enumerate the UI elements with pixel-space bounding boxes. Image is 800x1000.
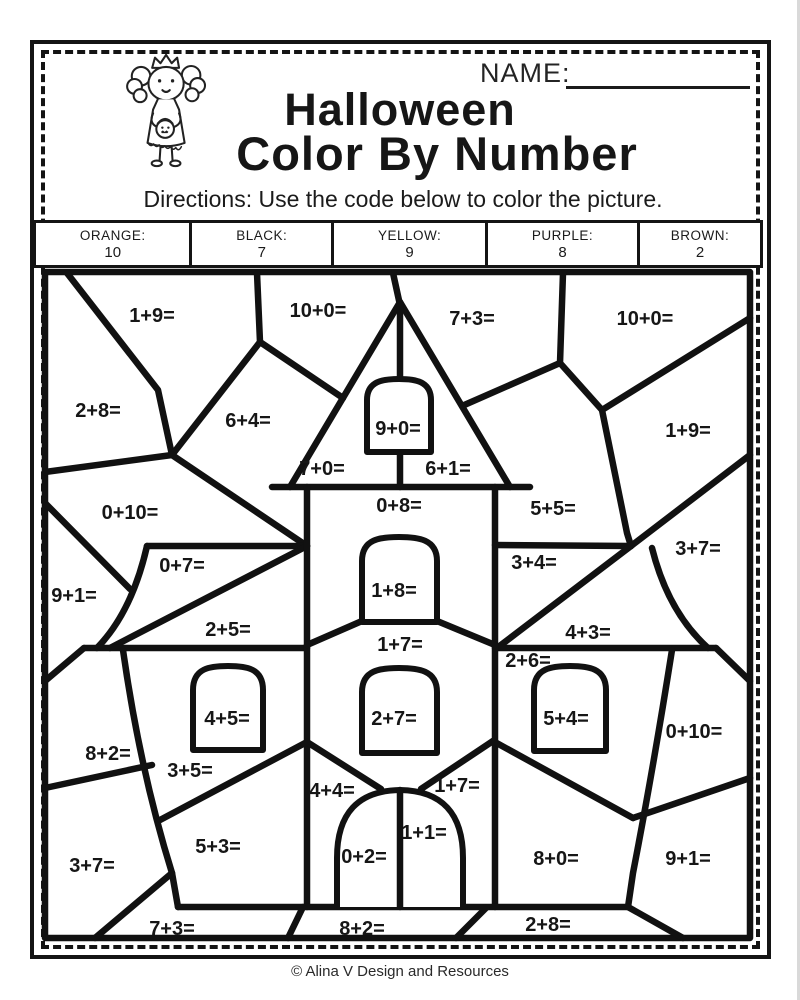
equation-label: 3+7= xyxy=(675,538,721,560)
equation-label: 0+10= xyxy=(666,721,723,743)
equation-label: 10+0= xyxy=(617,308,674,330)
crown-icon xyxy=(152,55,179,68)
color-number: 10 xyxy=(104,244,121,261)
equation-label: 3+5= xyxy=(167,760,213,782)
girl-eye-left xyxy=(158,79,161,82)
equation-label: 5+4= xyxy=(543,708,589,730)
equation-label: 1+9= xyxy=(129,305,175,327)
code-cell-black: BLACK: 7 xyxy=(192,223,334,265)
equation-label: 1+8= xyxy=(371,580,417,602)
equation-label: 3+7= xyxy=(69,855,115,877)
equation-label: 5+3= xyxy=(195,836,241,858)
color-number: 8 xyxy=(558,244,566,261)
code-cell-orange: ORANGE: 10 xyxy=(36,223,192,265)
worksheet-title-line2: Color By Number xyxy=(37,126,800,181)
equation-label: 4+3= xyxy=(565,622,611,644)
equation-label: 5+5= xyxy=(530,498,576,520)
girl-eye-right xyxy=(171,79,174,82)
equation-label: 1+9= xyxy=(665,420,711,442)
color-name: ORANGE: xyxy=(80,228,146,243)
equation-label: 3+4= xyxy=(511,552,557,574)
equation-label: 7+3= xyxy=(449,308,495,330)
equation-label: 1+7= xyxy=(434,775,480,797)
equation-label: 4+5= xyxy=(204,708,250,730)
tower-top-window xyxy=(367,379,431,452)
directions-text: Directions: Use the code below to color … xyxy=(0,186,800,213)
equation-label: 2+5= xyxy=(205,619,251,641)
equation-label: 2+6= xyxy=(505,650,551,672)
equation-label: 7+0= xyxy=(299,458,345,480)
color-name: YELLOW: xyxy=(378,228,441,243)
equation-label: 2+8= xyxy=(75,400,121,422)
color-name: BLACK: xyxy=(236,228,287,243)
equation-label: 4+4= xyxy=(309,780,355,802)
equation-label: 0+10= xyxy=(102,502,159,524)
equation-label: 7+3= xyxy=(149,918,195,940)
equation-label: 1+7= xyxy=(377,634,423,656)
copyright-credit: © Alina V Design and Resources xyxy=(0,963,800,980)
equation-label: 6+1= xyxy=(425,458,471,480)
equation-label: 0+7= xyxy=(159,555,205,577)
equation-label: 9+1= xyxy=(51,585,97,607)
equation-label: 9+0= xyxy=(375,418,421,440)
coloring-picture: 1+9=10+0=7+3=10+0=2+8=6+4=9+0=1+9=7+0=6+… xyxy=(40,268,756,944)
equation-label: 10+0= xyxy=(290,300,347,322)
color-number: 2 xyxy=(696,244,704,261)
equation-label: 6+4= xyxy=(225,410,271,432)
equation-label: 8+2= xyxy=(85,743,131,765)
color-code-table: ORANGE: 10 BLACK: 7 YELLOW: 9 PURPLE: 8 … xyxy=(33,220,763,268)
code-cell-purple: PURPLE: 8 xyxy=(488,223,640,265)
equation-label: 2+8= xyxy=(525,914,571,936)
equation-label: 0+2= xyxy=(341,846,387,868)
color-number: 9 xyxy=(405,244,413,261)
color-name: PURPLE: xyxy=(532,228,593,243)
equation-label: 8+0= xyxy=(533,848,579,870)
equation-label: 0+8= xyxy=(376,495,422,517)
code-cell-brown: BROWN: 2 xyxy=(640,223,760,265)
code-cell-yellow: YELLOW: 9 xyxy=(334,223,488,265)
equation-label: 9+1= xyxy=(665,848,711,870)
equation-label: 2+7= xyxy=(371,708,417,730)
color-number: 7 xyxy=(258,244,266,261)
equation-label: 1+1= xyxy=(401,822,447,844)
color-name: BROWN: xyxy=(671,228,730,243)
worksheet-page: NAME: Halloween Color By Number Directio… xyxy=(0,0,800,1000)
equation-label: 8+2= xyxy=(339,918,385,940)
